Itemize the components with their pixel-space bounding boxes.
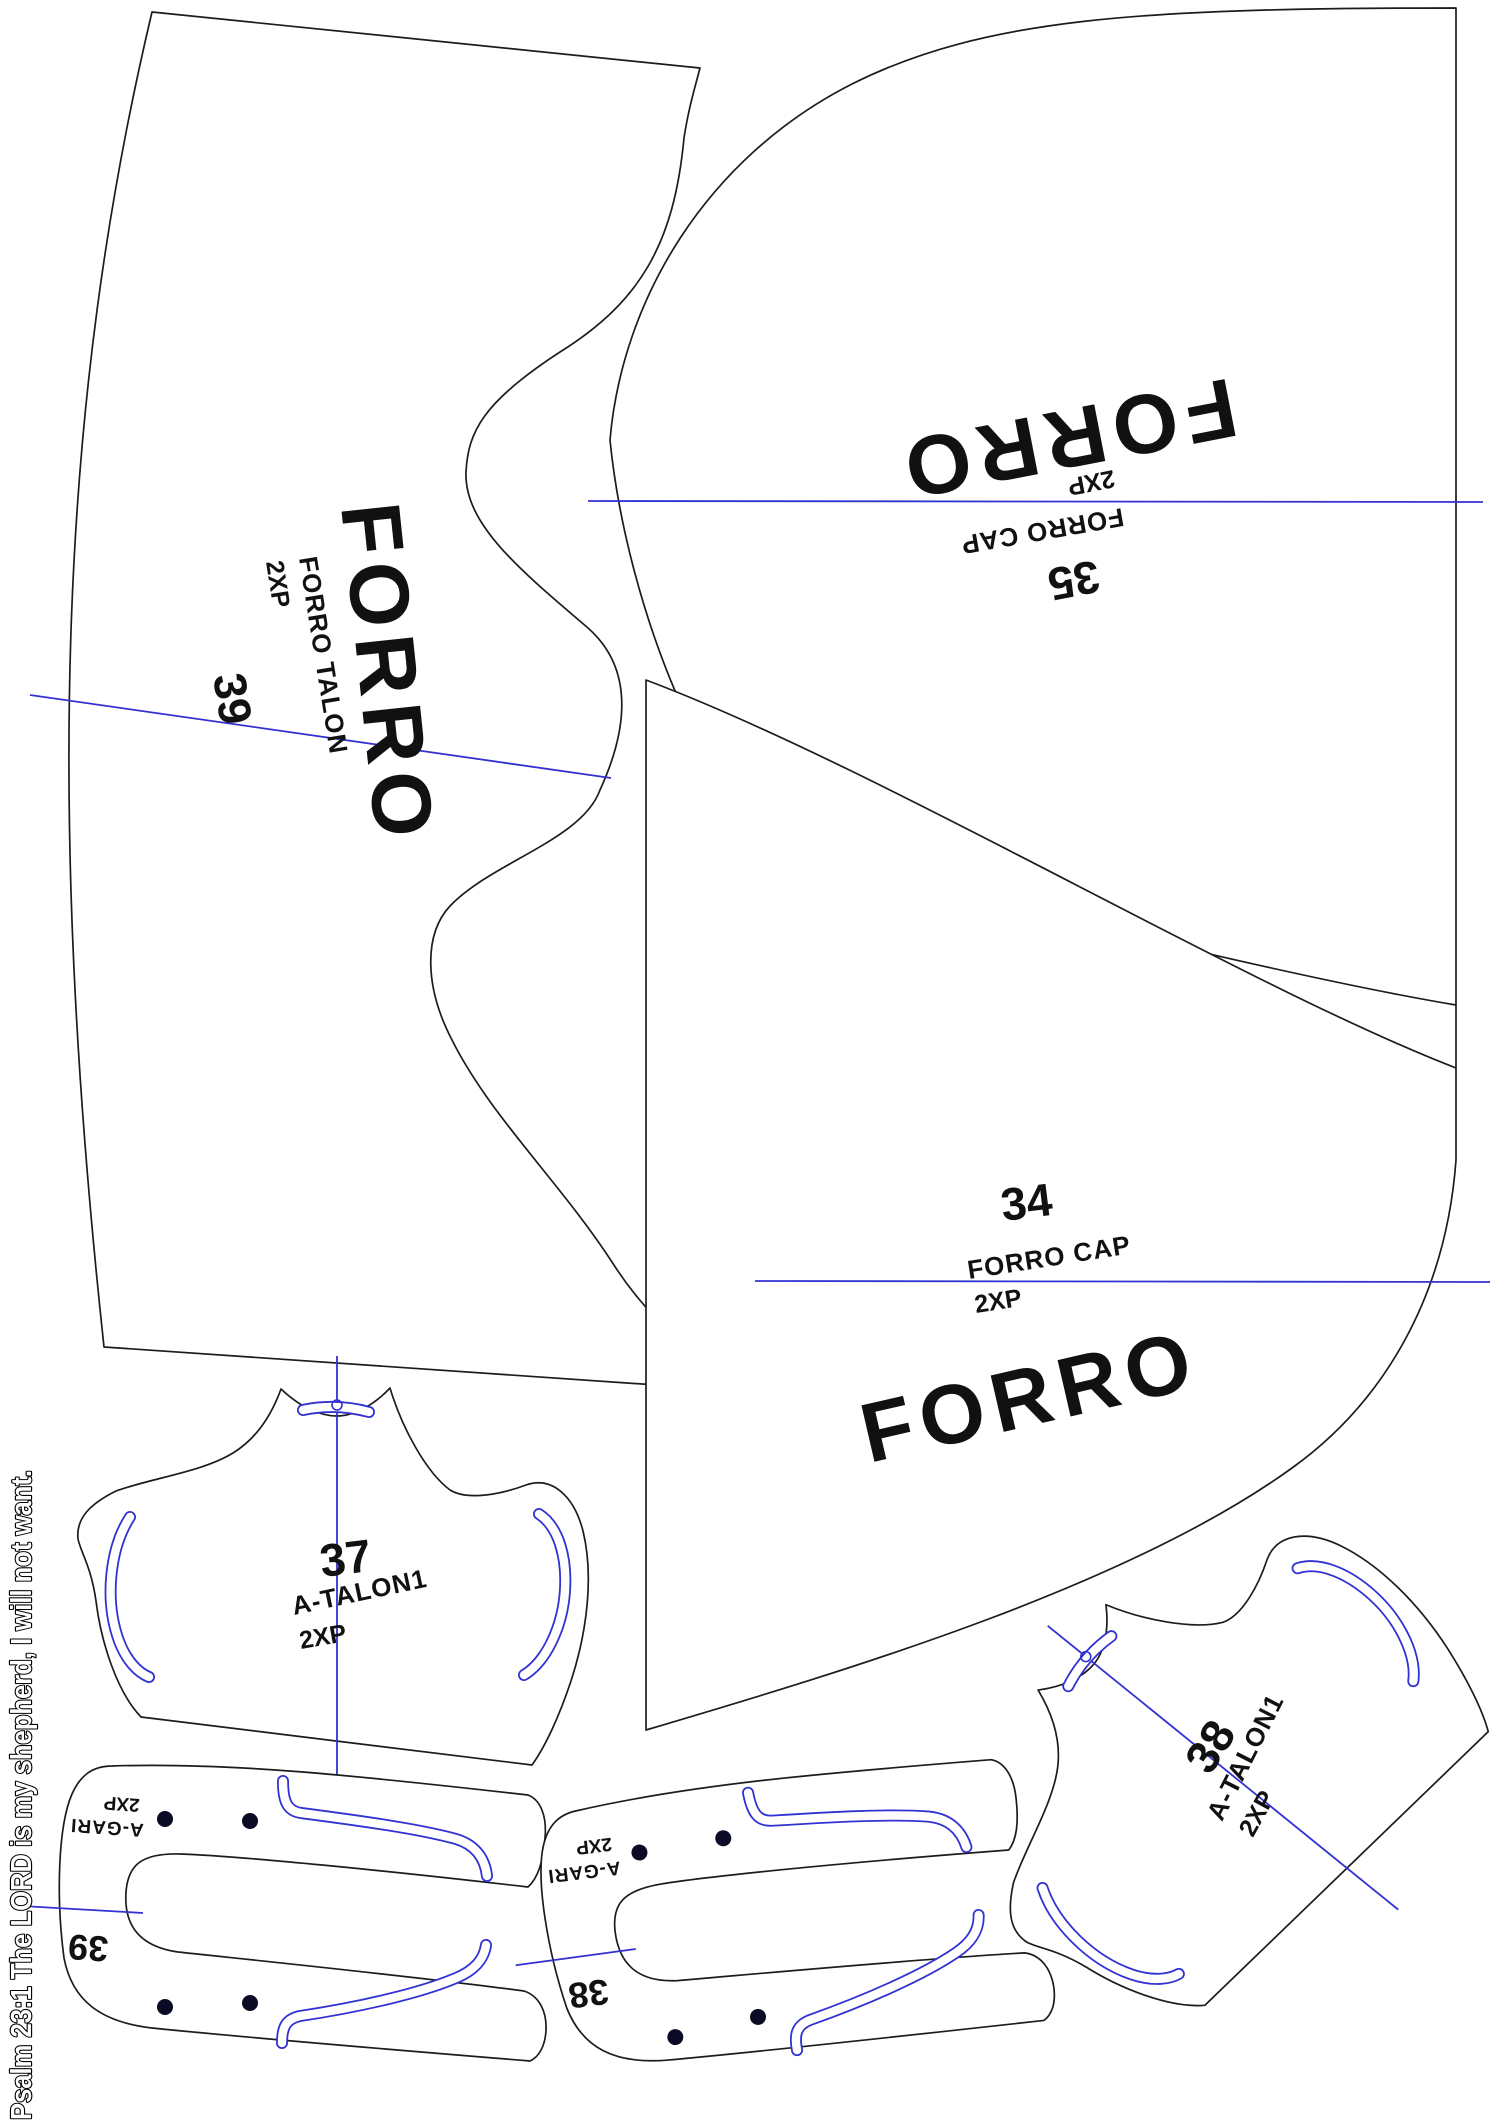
piece-size: 39	[67, 1926, 110, 1970]
lace-hole	[242, 1813, 258, 1829]
grain-line	[755, 1281, 1490, 1282]
piece-size: 34	[998, 1173, 1056, 1231]
piece-a-gari-38: 2XP A-GARI 38	[489, 1727, 1060, 2117]
pattern-sheet: FORRO FORRO TALON 2XP 39 FORRO 2XP FORRO…	[0, 0, 1500, 2121]
side-note: Psalm 23:1 The LORD is my shepherd, I wi…	[6, 1470, 38, 2120]
grain-line	[588, 501, 1483, 502]
lace-hole	[157, 1999, 173, 2015]
lace-hole	[242, 1995, 258, 2011]
piece-quantity: 2XP	[103, 1791, 141, 1814]
piece-a-gari-39: 2XP A-GARI 39	[22, 1765, 546, 2061]
piece-quantity: 2XP	[575, 1833, 614, 1858]
piece-size: 35	[1044, 550, 1104, 611]
lace-hole	[157, 1811, 173, 1827]
piece-size: 38	[566, 1971, 611, 2017]
piece-size: 39	[203, 669, 262, 728]
piece-a-talon1-37: 37 A-TALON1 2XP	[78, 1356, 589, 1807]
pattern-canvas: FORRO FORRO TALON 2XP 39 FORRO 2XP FORRO…	[0, 0, 1500, 2121]
